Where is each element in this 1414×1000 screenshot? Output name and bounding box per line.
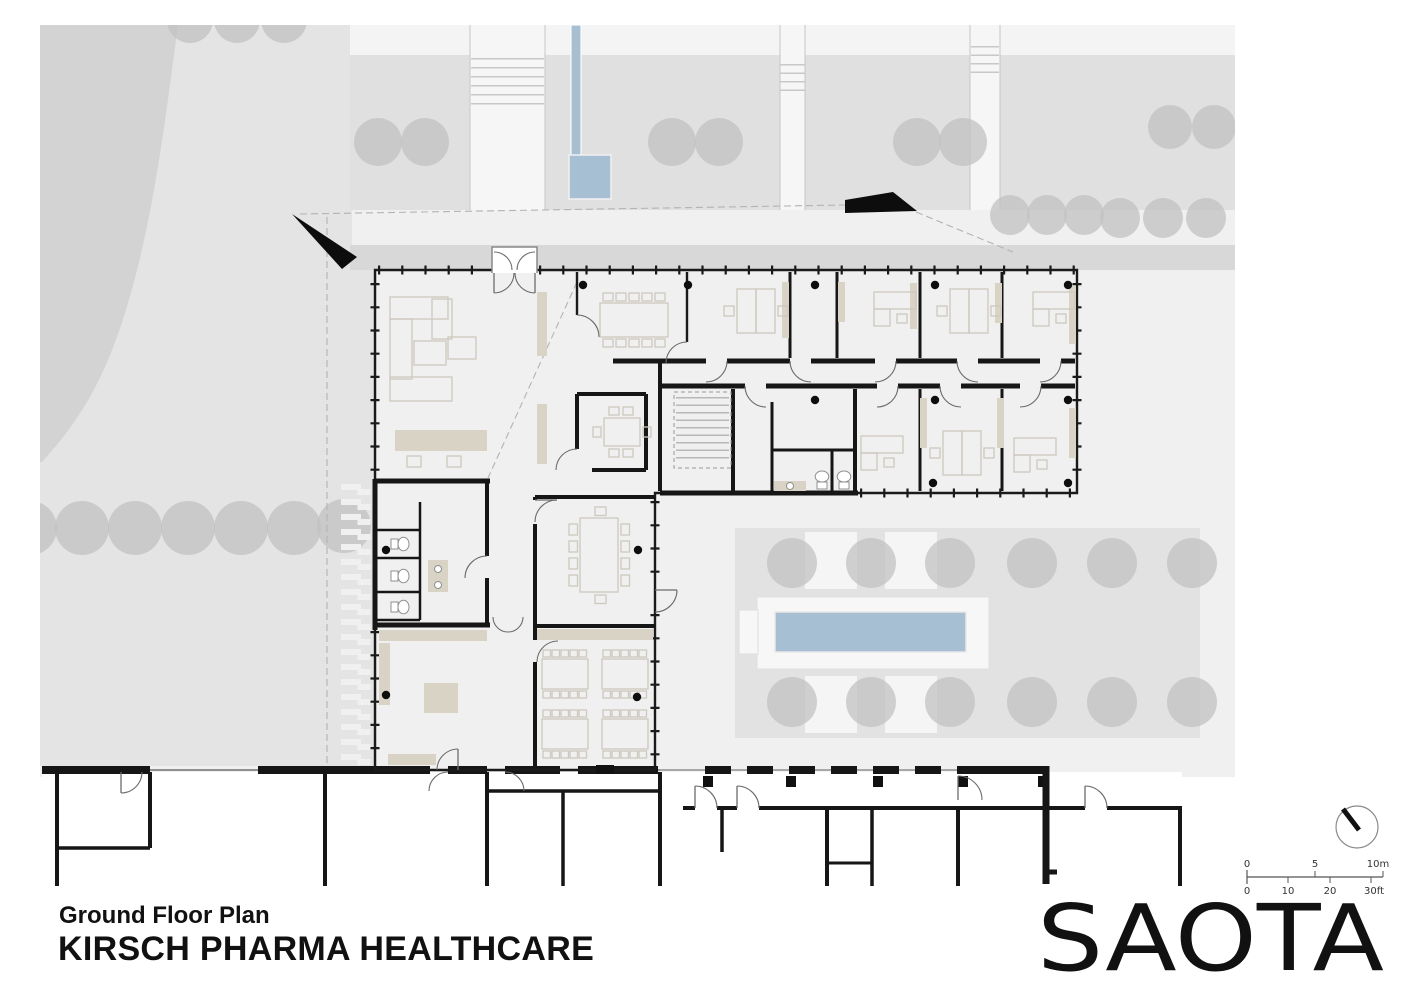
kitchen-island bbox=[424, 683, 458, 713]
pool-step bbox=[739, 610, 758, 654]
drawing-subtitle: Ground Floor Plan bbox=[59, 902, 270, 929]
floor-plan-canvas: 0 5 10m 0 10 20 30ft Ground Floor Plan K… bbox=[0, 0, 1414, 1000]
scale-m-5: 5 bbox=[1312, 859, 1318, 870]
canteen-counter bbox=[537, 629, 653, 640]
courtyard-pool bbox=[775, 612, 966, 652]
canteen-threshold bbox=[596, 765, 614, 774]
drawing-title: KIRSCH PHARMA HEALTHCARE bbox=[58, 930, 594, 968]
drawing-sheet: 0 5 10m 0 10 20 30ft Ground Floor Plan K… bbox=[0, 0, 1414, 1000]
scale-m-10: 10m bbox=[1367, 859, 1389, 870]
reception-desk bbox=[395, 430, 487, 451]
north-arrow-icon bbox=[1336, 806, 1378, 848]
canopy-band bbox=[350, 245, 1235, 270]
adjacent-building bbox=[42, 766, 1182, 886]
scale-m-0: 0 bbox=[1244, 859, 1250, 870]
saota-logo: SAOTA bbox=[1037, 885, 1384, 992]
entrance-vestibule bbox=[492, 247, 537, 273]
